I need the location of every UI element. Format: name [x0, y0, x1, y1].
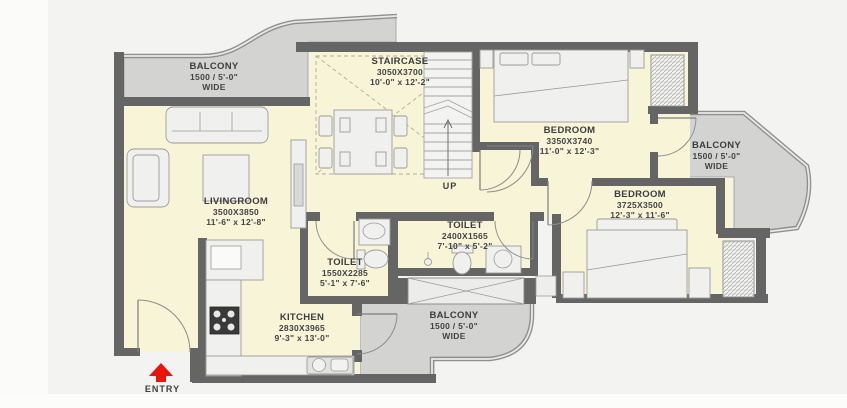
room-label-bedroom-2: BEDROOM 3725X3500 12'-3" x 11'-6"	[582, 190, 698, 220]
sink-icon	[307, 357, 353, 374]
room-label-balcony-top-left: BALCONY 1500 / 5'-0" WIDE	[154, 62, 274, 92]
up-label: UP	[436, 181, 464, 191]
room-label-toilet-2: TOILET 2400X1565 7'-10" x 5'-2"	[407, 221, 523, 251]
wardrobe1-icon	[651, 55, 684, 106]
room-label-balcony-bottom: BALCONY 1500 / 5'-0" WIDE	[396, 311, 512, 341]
room-label-toilet-1: TOILET 1550X2285 5'-1" x 7'-6"	[289, 258, 401, 288]
room-label-kitchen: KITCHEN 2830X3965 9'-3" x 13'-0"	[243, 313, 361, 343]
stove-icon	[210, 307, 239, 334]
coffee-table-icon	[203, 155, 249, 201]
floor-trap-icon	[425, 259, 432, 266]
armchair-icon	[127, 149, 169, 207]
room-label-staircase: STAIRCASE 3050X3700 10'-0" x 12'-2"	[340, 57, 460, 87]
wardrobe2-icon	[723, 241, 754, 297]
floor-plan: BALCONY 1500 / 5'-0" WIDE STAIRCASE 3050…	[0, 0, 847, 408]
room-label-livingroom: LIVINGROOM 3500X3850 11'-6" x 12'-8"	[176, 197, 296, 227]
entry-label: ENTRY	[135, 384, 190, 394]
duct	[536, 276, 556, 296]
sofa-icon	[166, 107, 268, 143]
balcony-sill	[408, 278, 524, 304]
room-label-balcony-right: BALCONY 1500 / 5'-0" WIDE	[664, 141, 769, 171]
room-label-bedroom-1: BEDROOM 3350X3740 11'-0" x 12'-3"	[512, 126, 627, 156]
bed1-icon	[480, 50, 644, 122]
